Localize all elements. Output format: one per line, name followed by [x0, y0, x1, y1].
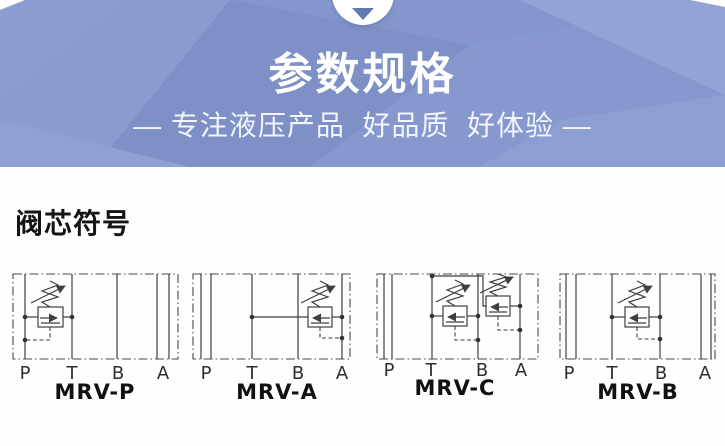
- valve-schematics: P T B A MRV-P: [0, 258, 725, 418]
- port-label: P: [201, 363, 212, 384]
- port-label: P: [20, 363, 31, 384]
- port-label: A: [336, 363, 349, 384]
- port-label: P: [384, 360, 395, 381]
- section-heading: 阀芯符号: [15, 202, 131, 242]
- port-label: A: [515, 360, 528, 381]
- banner-subtitle: — 专注液压产品 好品质 好体验 —: [0, 104, 725, 144]
- port-label: A: [699, 363, 712, 384]
- port-label: P: [564, 363, 575, 384]
- banner: 参数规格 — 专注液压产品 好品质 好体验 —: [0, 0, 725, 167]
- valve-diagram-mrv-p: P T B A MRV-P: [13, 274, 178, 404]
- banner-title: 参数规格: [0, 38, 725, 102]
- product-detail-page: 参数规格 — 专注液压产品 好品质 好体验 — 阀芯符号: [0, 0, 725, 446]
- diagram-name: MRV-A: [236, 380, 318, 404]
- diagram-name: MRV-B: [597, 380, 679, 404]
- port-label: A: [157, 363, 170, 384]
- diagram-name: MRV-C: [415, 376, 496, 400]
- valve-diagram-mrv-c: P T B A MRV-C: [377, 274, 538, 400]
- triangle-down-icon: [352, 8, 374, 20]
- valve-diagram-mrv-b: P T B A MRV-B: [560, 274, 715, 404]
- diagram-name: MRV-P: [55, 380, 136, 404]
- valve-diagram-mrv-a: P T B A MRV-A: [193, 274, 350, 404]
